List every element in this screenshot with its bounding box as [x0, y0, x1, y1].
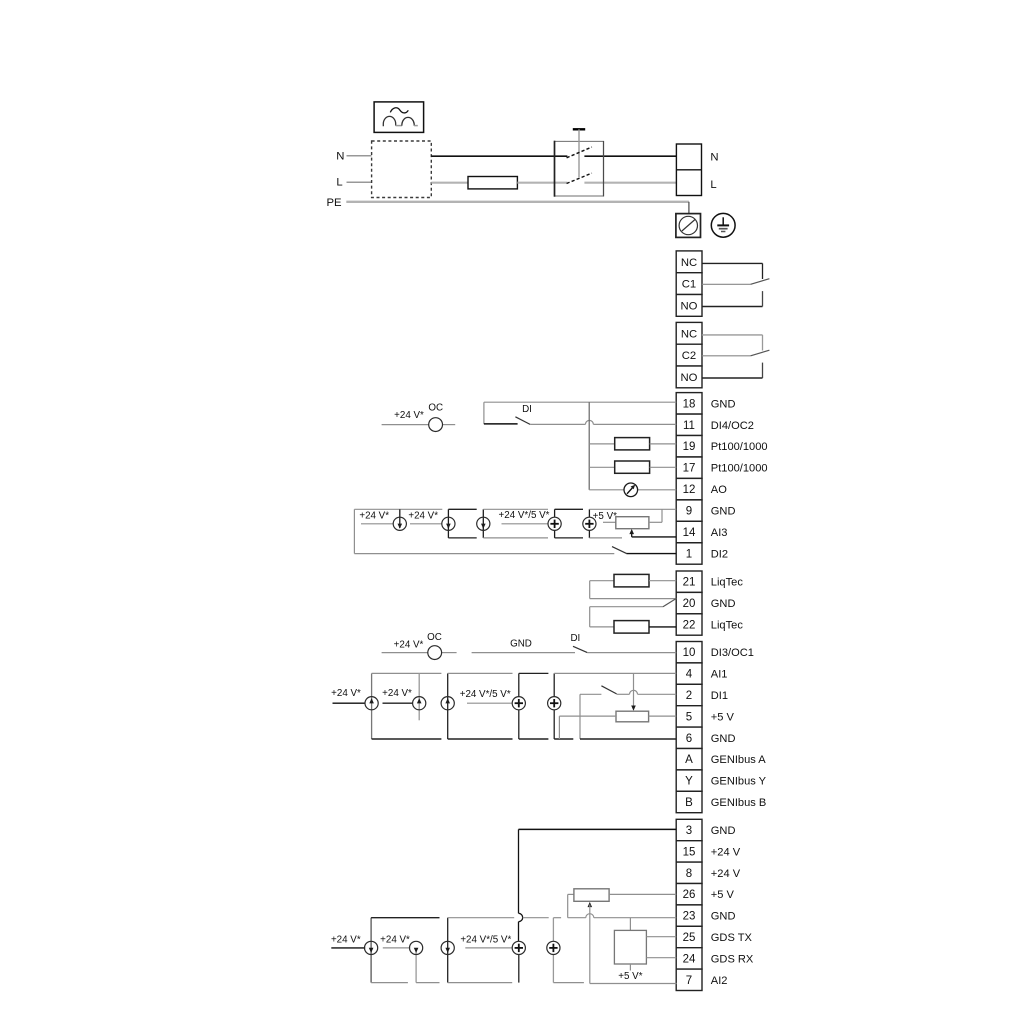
svg-text:22: 22 — [683, 620, 696, 632]
svg-text:DI3/OC1: DI3/OC1 — [711, 647, 754, 659]
svg-text:10: 10 — [683, 647, 696, 659]
svg-text:GND: GND — [510, 639, 532, 650]
svg-text:+24 V*/5 V*: +24 V*/5 V* — [460, 934, 511, 945]
svg-text:DI1: DI1 — [711, 690, 728, 702]
svg-text:C2: C2 — [682, 350, 696, 362]
svg-text:+24 V*: +24 V* — [331, 934, 361, 945]
svg-text:LiqTec: LiqTec — [711, 577, 744, 589]
svg-text:A: A — [685, 754, 693, 766]
svg-text:23: 23 — [683, 911, 696, 923]
svg-text:DI: DI — [570, 633, 580, 644]
svg-text:LiqTec: LiqTec — [711, 620, 744, 632]
svg-text:9: 9 — [686, 506, 692, 518]
svg-text:GND: GND — [711, 733, 736, 745]
svg-text:NO: NO — [681, 372, 698, 384]
svg-text:+5 V*: +5 V* — [618, 971, 642, 982]
svg-text:11: 11 — [683, 420, 695, 432]
svg-text:24: 24 — [683, 953, 696, 965]
svg-text:GND: GND — [711, 398, 736, 410]
svg-text:25: 25 — [683, 932, 696, 944]
svg-text:GENIbus Y: GENIbus Y — [711, 776, 767, 788]
svg-text:+5 V*: +5 V* — [593, 511, 617, 522]
svg-text:N: N — [710, 151, 718, 163]
svg-text:L: L — [336, 177, 342, 189]
svg-text:19: 19 — [683, 441, 696, 453]
svg-text:Pt100/1000: Pt100/1000 — [711, 463, 768, 475]
svg-text:OC: OC — [427, 632, 442, 643]
svg-text:21: 21 — [683, 577, 696, 589]
svg-text:18: 18 — [683, 398, 696, 410]
svg-text:DI4/OC2: DI4/OC2 — [711, 420, 754, 432]
svg-text:17: 17 — [683, 463, 696, 475]
svg-text:GND: GND — [711, 911, 736, 923]
svg-text:+24 V*: +24 V* — [408, 510, 438, 521]
svg-text:+5 V: +5 V — [711, 889, 735, 901]
svg-text:AI2: AI2 — [711, 975, 728, 987]
svg-text:GDS RX: GDS RX — [711, 953, 754, 965]
svg-text:GENIbus A: GENIbus A — [711, 754, 766, 766]
svg-text:NC: NC — [681, 328, 697, 340]
svg-text:Y: Y — [685, 776, 693, 788]
svg-text:+24 V: +24 V — [711, 868, 741, 880]
svg-text:+24 V*: +24 V* — [394, 410, 424, 421]
svg-text:+24 V*/5 V*: +24 V*/5 V* — [460, 689, 511, 700]
svg-text:+24 V*: +24 V* — [331, 688, 361, 699]
svg-text:PE: PE — [326, 197, 342, 209]
svg-text:DI2: DI2 — [711, 549, 728, 561]
svg-text:GDS TX: GDS TX — [711, 932, 753, 944]
svg-text:7: 7 — [686, 975, 692, 987]
svg-text:AI1: AI1 — [711, 669, 728, 681]
svg-text:+24 V*: +24 V* — [359, 510, 389, 521]
svg-text:12: 12 — [683, 484, 696, 496]
svg-text:8: 8 — [686, 868, 692, 880]
svg-text:N: N — [336, 151, 344, 163]
svg-text:+24 V*: +24 V* — [394, 639, 424, 650]
svg-text:4: 4 — [686, 669, 693, 681]
svg-text:+24 V: +24 V — [711, 846, 741, 858]
svg-text:2: 2 — [686, 690, 692, 702]
svg-text:GND: GND — [711, 598, 736, 610]
svg-text:15: 15 — [683, 846, 696, 858]
svg-text:OC: OC — [428, 403, 443, 414]
svg-text:GND: GND — [711, 825, 736, 837]
svg-text:Pt100/1000: Pt100/1000 — [711, 441, 768, 453]
svg-text:5: 5 — [686, 711, 692, 723]
svg-text:AO: AO — [711, 484, 727, 496]
svg-text:L: L — [710, 179, 716, 191]
svg-text:1: 1 — [686, 549, 692, 561]
svg-text:GENIbus B: GENIbus B — [711, 797, 767, 809]
svg-text:NO: NO — [681, 300, 698, 312]
svg-text:6: 6 — [686, 733, 692, 745]
svg-text:+24 V*: +24 V* — [380, 934, 410, 945]
svg-text:B: B — [685, 797, 693, 809]
svg-text:26: 26 — [683, 889, 696, 901]
svg-text:20: 20 — [683, 598, 696, 610]
svg-text:+24 V*/5 V*: +24 V*/5 V* — [499, 510, 550, 521]
svg-text:C1: C1 — [682, 279, 696, 291]
svg-text:AI3: AI3 — [711, 527, 728, 539]
svg-text:DI: DI — [522, 404, 532, 415]
svg-text:+24 V*: +24 V* — [382, 688, 412, 699]
svg-text:14: 14 — [683, 527, 696, 539]
svg-text:NC: NC — [681, 257, 697, 269]
svg-text:+5 V: +5 V — [711, 711, 735, 723]
svg-text:3: 3 — [686, 825, 692, 837]
svg-text:GND: GND — [711, 506, 736, 518]
